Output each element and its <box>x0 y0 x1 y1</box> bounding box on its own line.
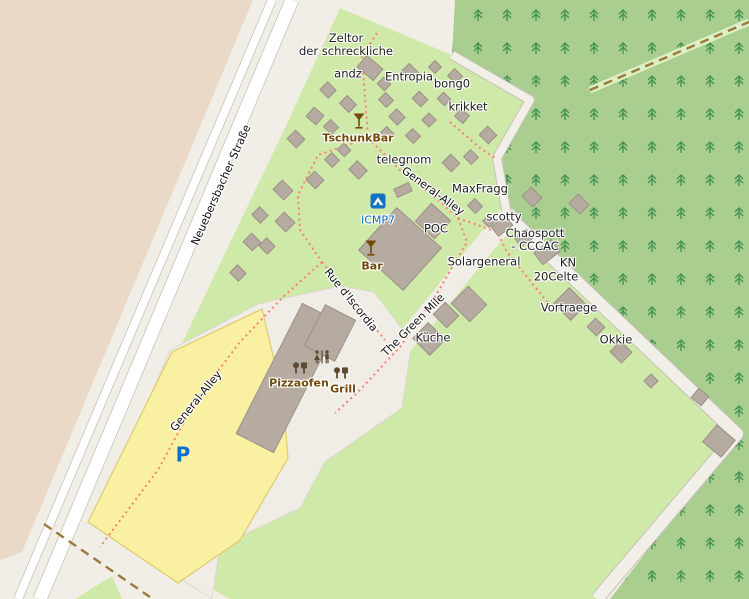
poi-label-vortraege: Vortraege <box>541 302 597 315</box>
poi-round-icon <box>292 362 300 374</box>
poi-label-poc: POC <box>424 223 448 236</box>
poi-label-tschunkbar: TschunkBar <box>322 132 393 145</box>
cocktail-icon <box>365 240 378 257</box>
poi-label-p: P <box>176 449 191 462</box>
campsite-icon <box>371 194 386 209</box>
map-layers <box>0 0 749 599</box>
poi-square-icon <box>300 362 308 374</box>
poi-square-icon <box>341 367 349 379</box>
poi-label-krikket: krikket <box>448 101 487 114</box>
poi-round-icon <box>333 367 341 379</box>
poi-label-scotty: scotty <box>486 211 521 224</box>
cocktail-icon <box>353 113 366 130</box>
poi-label-maxfragg: MaxFragg <box>452 183 508 196</box>
poi-label-solargeneral: Solargeneral <box>448 256 521 269</box>
poi-label-20celte: 20Celte <box>534 271 579 284</box>
poi-label-entropia: Entropia <box>385 71 433 84</box>
poi-label-pizzaofen: Pizzaofen <box>269 377 329 390</box>
poi-label-bar: Bar <box>361 260 382 273</box>
poi-label-kn: KN <box>560 257 576 270</box>
poi-label-icmp7: ICMP7 <box>361 214 395 227</box>
poi-label-zeltor: Zeltorder schreckliche <box>299 32 393 58</box>
poi-label-andz: andz <box>334 68 362 81</box>
toilets-icon <box>313 350 332 364</box>
poi-label-bong0: bong0 <box>434 78 470 91</box>
poi-label-grill: Grill <box>330 383 356 396</box>
poi-label-telegnom: telegnom <box>377 154 432 167</box>
poi-label-okkie: Okkie <box>600 334 633 347</box>
map-canvas[interactable]: Neuebersbacher StraßeGeneral-AlleyGenera… <box>0 0 749 599</box>
poi-label-chaospott: Chaospott- CCCAC <box>506 227 565 253</box>
poi-label-k-che: Küche <box>416 332 451 345</box>
